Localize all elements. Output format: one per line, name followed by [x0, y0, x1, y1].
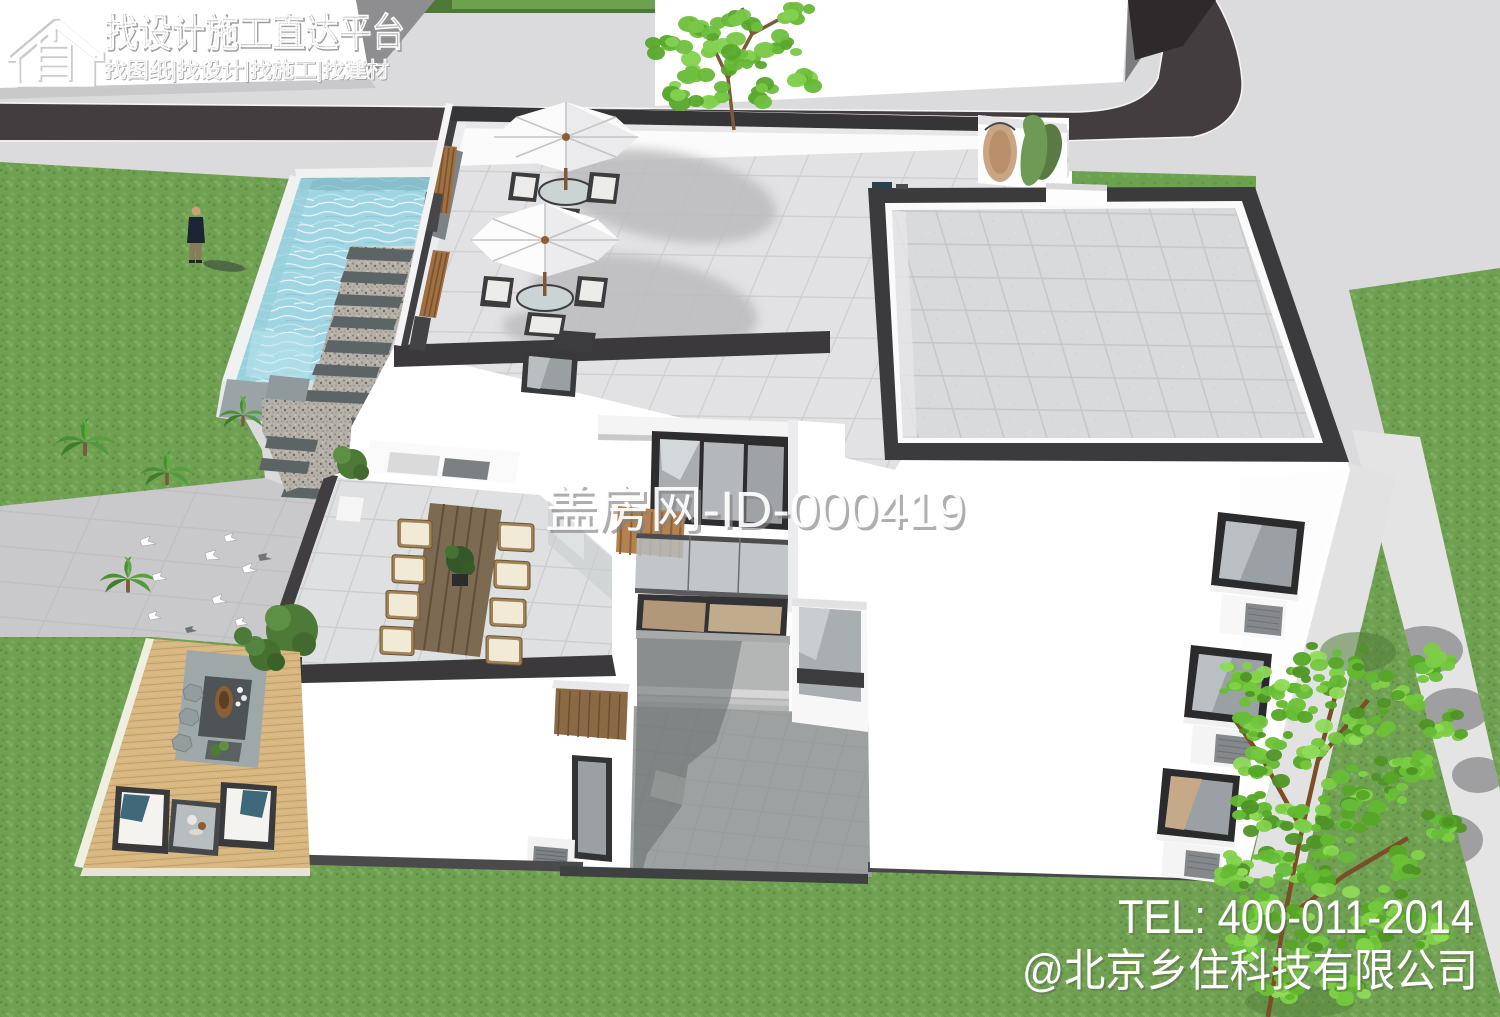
- svg-text:@北京乡住科技有限公司: @北京乡住科技有限公司: [1022, 945, 1478, 996]
- svg-text:找设计施工直达平台: 找设计施工直达平台: [104, 12, 405, 55]
- svg-text:找图纸|找设计|找施工|找建材: 找图纸|找设计|找施工|找建材: [104, 59, 389, 82]
- svg-text:盖房网-ID-000419: 盖房网-ID-000419: [545, 481, 965, 538]
- svg-text:TEL: 400-011-2014: TEL: 400-011-2014: [1118, 890, 1474, 943]
